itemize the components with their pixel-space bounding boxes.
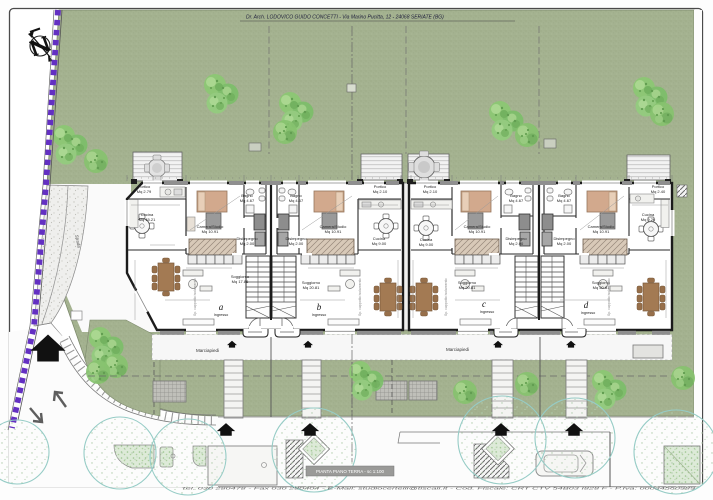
- svg-text:Dr. Arch. LODOVICO GUIDO CONCE: Dr. Arch. LODOVICO GUIDO CONCETTI - Via …: [246, 15, 444, 21]
- svg-text:Mq 2.00: Mq 2.00: [509, 241, 524, 246]
- svg-text:Mq 2.00: Mq 2.00: [240, 241, 255, 246]
- svg-text:Ingresso: Ingresso: [480, 310, 495, 314]
- svg-text:Mq 20.81: Mq 20.81: [459, 285, 476, 290]
- svg-text:Mq 2.79: Mq 2.79: [137, 189, 152, 194]
- svg-text:Ingresso: Ingresso: [581, 311, 596, 315]
- svg-text:Mq 2.10: Mq 2.10: [373, 189, 388, 194]
- svg-text:Mq 10.91: Mq 10.91: [469, 229, 486, 234]
- svg-text:Mq 20.81: Mq 20.81: [303, 285, 320, 290]
- svg-text:Sp. cappotto isolamento: Sp. cappotto isolamento: [607, 278, 611, 316]
- svg-text:Mq 15.21: Mq 15.21: [139, 217, 156, 222]
- svg-text:c: c: [482, 299, 486, 309]
- svg-text:Mq 4.67: Mq 4.67: [557, 198, 572, 203]
- svg-text:Mq 9.00: Mq 9.00: [372, 241, 387, 246]
- svg-text:Mq 4.67: Mq 4.67: [240, 198, 255, 203]
- svg-text:Marciapiedi: Marciapiedi: [196, 348, 219, 353]
- svg-text:Mq 9.20: Mq 9.20: [641, 217, 656, 222]
- svg-text:Sp. cappotto isolamento: Sp. cappotto isolamento: [358, 278, 362, 316]
- svg-text:Mq 2.00: Mq 2.00: [289, 241, 304, 246]
- svg-text:d: d: [584, 300, 589, 310]
- svg-text:Marciapiedi: Marciapiedi: [446, 347, 469, 352]
- svg-text:PIANTA PIANO TERRA - sc 1:10: PIANTA PIANO TERRA - sc 1:100: [316, 469, 385, 474]
- svg-text:Mq 2.00: Mq 2.00: [557, 241, 572, 246]
- svg-text:Mq 2.40: Mq 2.40: [651, 189, 666, 194]
- svg-text:Sp. cappotto isolamento: Sp. cappotto isolamento: [444, 278, 448, 316]
- svg-text:Mq 10.91: Mq 10.91: [325, 229, 342, 234]
- svg-text:Sp. cappotto isolamento: Sp. cappotto isolamento: [193, 278, 197, 316]
- svg-text:Mq 17.86: Mq 17.86: [232, 279, 249, 284]
- svg-text:a: a: [219, 302, 224, 312]
- svg-text:Mq 4.67: Mq 4.67: [509, 198, 524, 203]
- svg-text:b: b: [317, 302, 322, 312]
- svg-text:Mq 9.00: Mq 9.00: [419, 242, 434, 247]
- svg-text:Ingresso: Ingresso: [214, 313, 229, 317]
- svg-text:Tel. 030 280478 - Fax 030 28: Tel. 030 280478 - Fax 030 280404 - E-Mai…: [181, 486, 697, 491]
- svg-text:Mq 2.10: Mq 2.10: [423, 189, 438, 194]
- svg-text:Mq 4.67: Mq 4.67: [289, 198, 304, 203]
- svg-text:Mq 10.91: Mq 10.91: [593, 229, 610, 234]
- svg-text:Mq 10.91: Mq 10.91: [202, 229, 219, 234]
- svg-text:Ingresso: Ingresso: [312, 313, 327, 317]
